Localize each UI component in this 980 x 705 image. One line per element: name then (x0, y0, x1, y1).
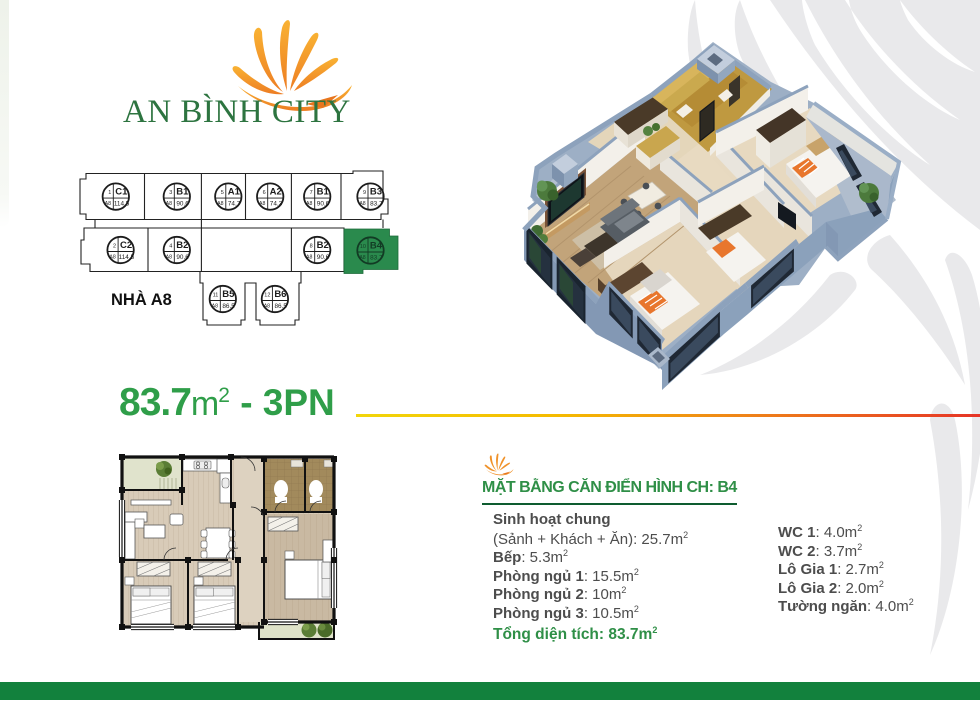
svg-text:A8: A8 (166, 255, 172, 261)
svg-text:B2: B2 (176, 240, 188, 251)
svg-text:6: 6 (263, 190, 266, 196)
svg-text:B2: B2 (317, 240, 329, 251)
svg-text:A8: A8 (306, 201, 312, 207)
svg-text:90.6: 90.6 (317, 254, 330, 261)
svg-text:A8: A8 (212, 304, 218, 310)
svg-text:A8: A8 (359, 255, 365, 261)
svg-text:B6: B6 (274, 289, 286, 300)
svg-text:90.6: 90.6 (317, 201, 330, 208)
svg-text:B1: B1 (317, 187, 330, 198)
svg-text:114.5: 114.5 (119, 254, 135, 261)
svg-text:A8: A8 (105, 201, 111, 207)
svg-text:7: 7 (310, 190, 313, 196)
svg-text:11: 11 (213, 293, 219, 299)
svg-text:1: 1 (108, 190, 111, 196)
svg-text:114.5: 114.5 (114, 201, 130, 208)
svg-text:4: 4 (169, 244, 172, 250)
svg-text:B5: B5 (222, 289, 235, 300)
svg-text:A8: A8 (217, 201, 223, 207)
svg-text:A8: A8 (166, 201, 172, 207)
svg-text:B4: B4 (370, 241, 383, 252)
svg-text:90.6: 90.6 (176, 254, 189, 261)
svg-text:74.7: 74.7 (228, 201, 241, 208)
svg-text:A8: A8 (109, 255, 115, 261)
svg-text:5: 5 (221, 190, 224, 196)
svg-text:A8: A8 (359, 201, 365, 207)
svg-text:86.5: 86.5 (274, 303, 287, 310)
svg-text:3: 3 (169, 190, 172, 196)
svg-text:83.7: 83.7 (370, 255, 383, 262)
svg-text:90.6: 90.6 (176, 201, 189, 208)
svg-text:B1: B1 (176, 187, 189, 198)
svg-text:A8: A8 (259, 201, 265, 207)
svg-text:8: 8 (310, 244, 313, 250)
svg-text:10: 10 (360, 244, 366, 250)
svg-text:AN BÌNH CITY: AN BÌNH CITY (123, 93, 351, 130)
svg-text:A1: A1 (228, 187, 241, 198)
svg-text:A2: A2 (270, 187, 282, 198)
svg-text:86.5: 86.5 (222, 303, 235, 310)
svg-text:83.7: 83.7 (370, 201, 383, 208)
svg-text:C2: C2 (120, 240, 132, 251)
svg-text:2: 2 (113, 244, 116, 250)
svg-text:9: 9 (363, 190, 366, 196)
svg-text:C1: C1 (115, 187, 128, 198)
svg-text:74.3: 74.3 (270, 201, 283, 208)
svg-text:B3: B3 (370, 187, 382, 198)
svg-text:12: 12 (264, 293, 270, 299)
svg-text:A8: A8 (306, 255, 312, 261)
svg-text:A8: A8 (264, 304, 270, 310)
svg-text:NHÀ A8: NHÀ A8 (111, 290, 172, 309)
